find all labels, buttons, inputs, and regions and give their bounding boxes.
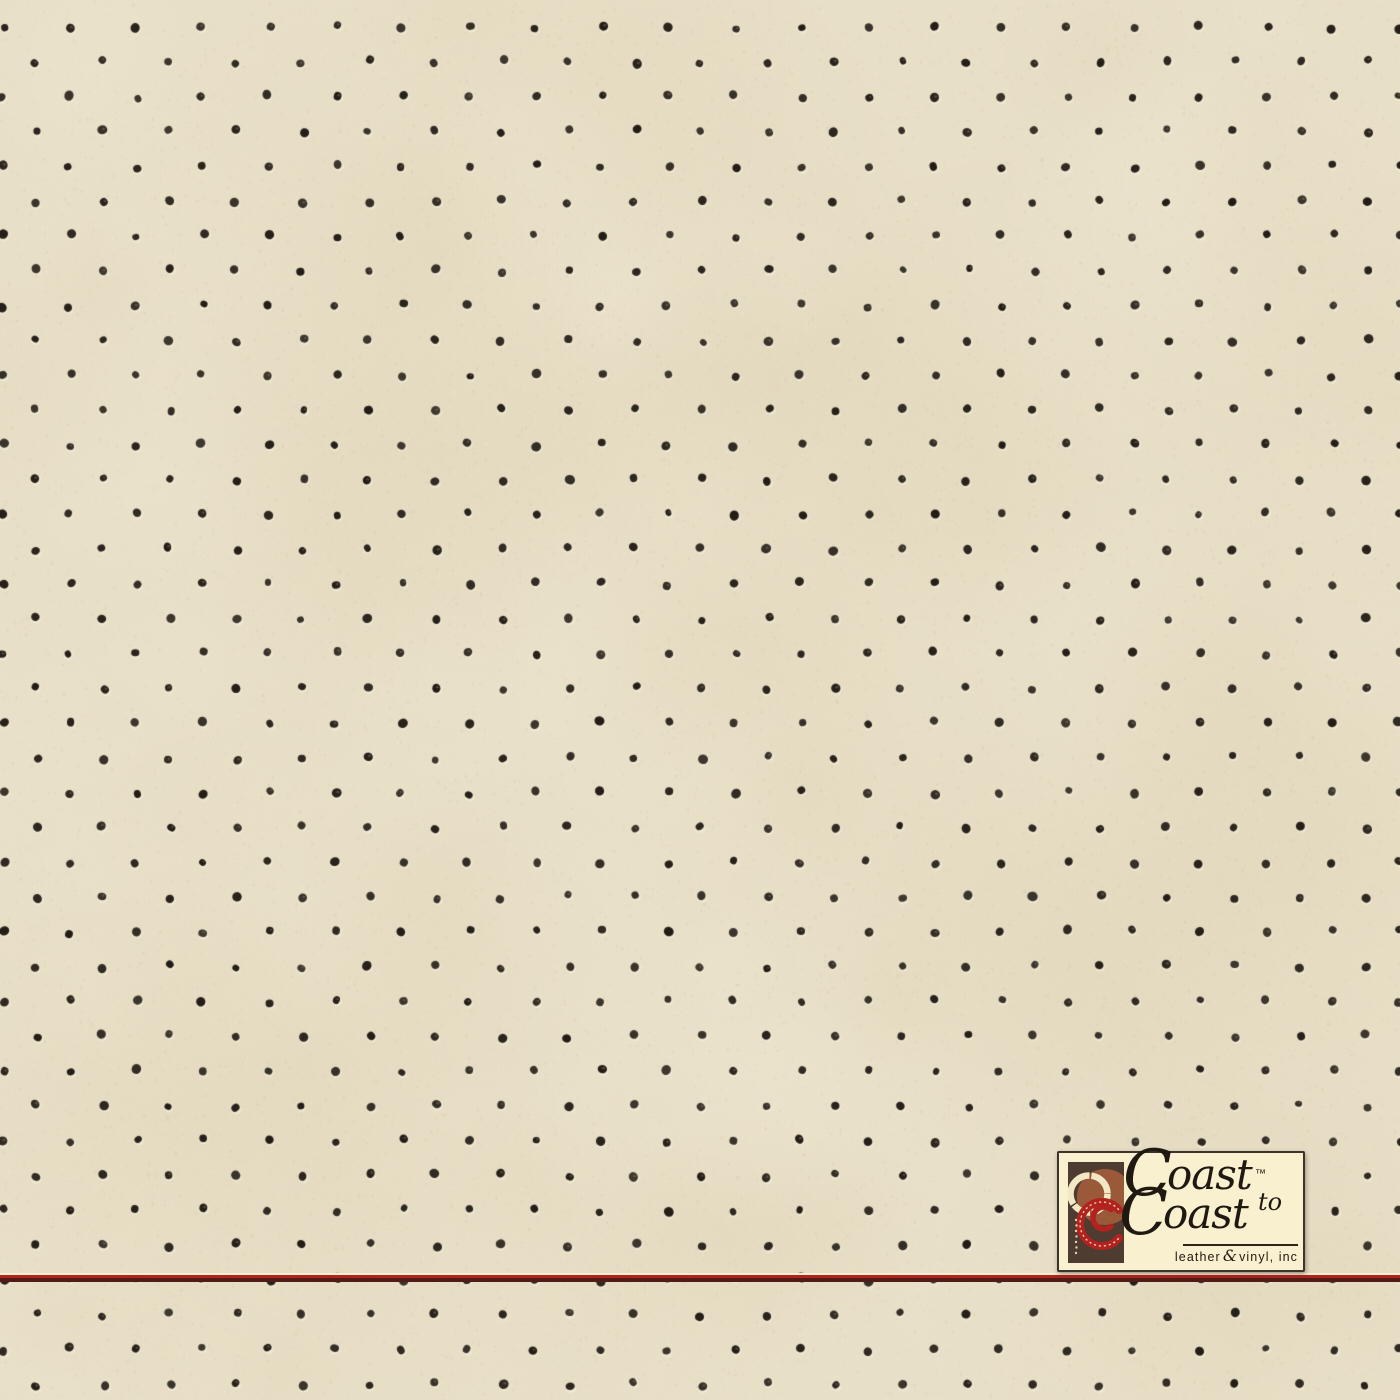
divider-maroon-line [0,1278,1400,1282]
logo-word-coast-bottom: Coast [1119,1193,1248,1235]
leather-swatch-photo: Coast ™ to Coast leather&vinyl, inc [0,0,1400,1400]
tagline-ampersand: & [1223,1246,1237,1265]
divider-line [0,1273,1400,1282]
logo-word-to: to [1258,1190,1282,1214]
brand-logo: Coast ™ to Coast leather&vinyl, inc [1057,1151,1305,1272]
logo-rule [1183,1244,1298,1246]
logo-word-rest: oast [1163,1189,1248,1238]
tagline-vinyl-inc: vinyl, inc [1239,1250,1298,1264]
trademark-symbol: ™ [1255,1168,1266,1180]
tagline-leather: leather [1175,1250,1221,1264]
logo-tagline: leather&vinyl, inc [1145,1247,1298,1265]
logo-mark-icon [1068,1162,1124,1263]
